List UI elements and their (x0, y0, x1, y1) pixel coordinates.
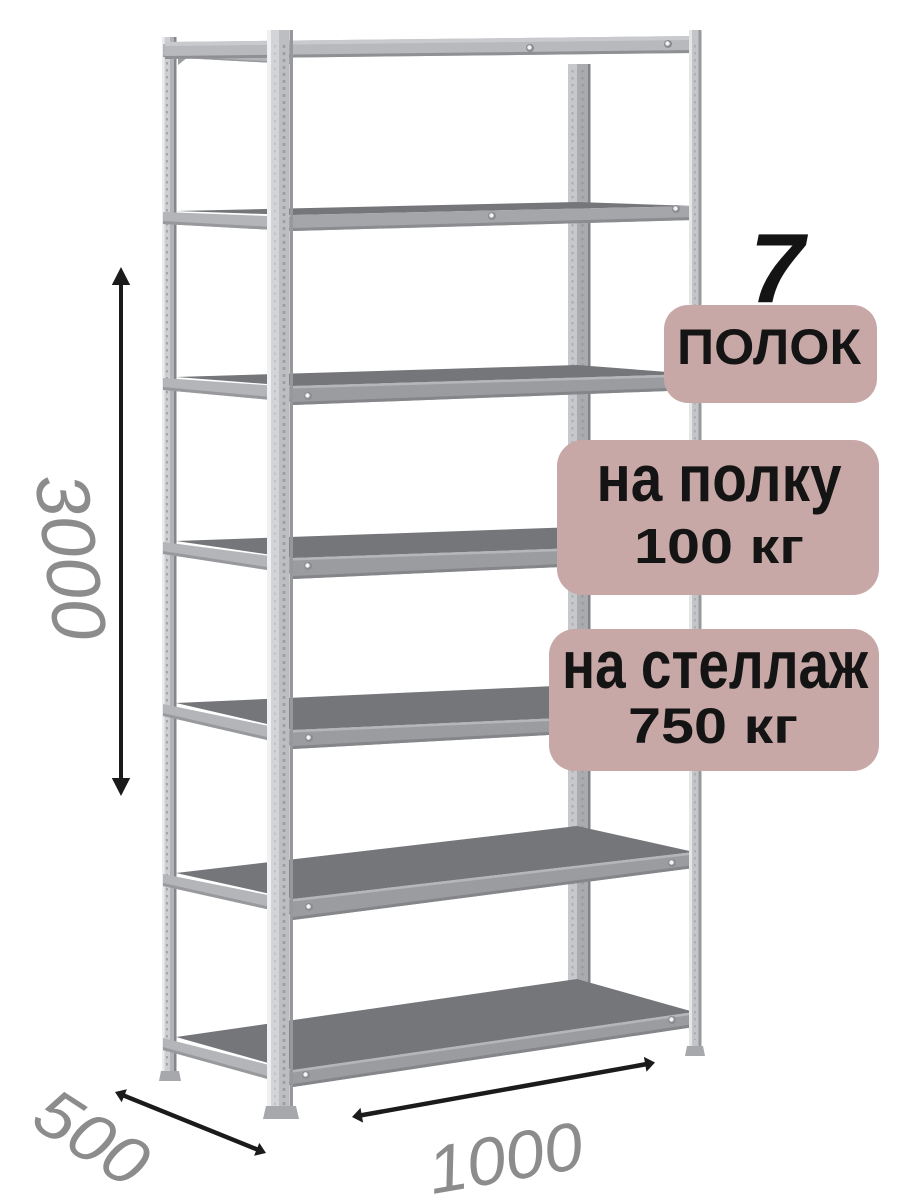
svg-text:750 кг: 750 кг (628, 698, 798, 754)
svg-text:на стеллаж: на стеллаж (562, 627, 869, 703)
svg-text:100 кг: 100 кг (634, 520, 804, 574)
svg-text:на полку: на полку (597, 441, 842, 515)
svg-text:ПОЛОК: ПОЛОК (677, 319, 861, 375)
